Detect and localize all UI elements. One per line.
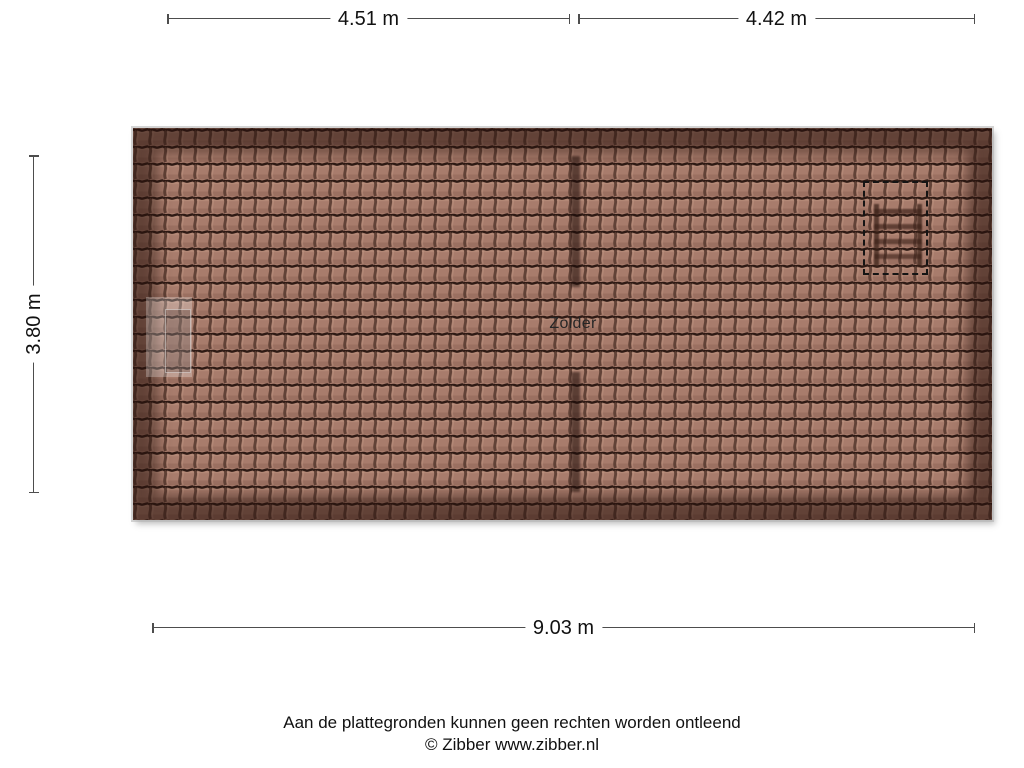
dimension-line-bottom: 9.03 m — [152, 621, 975, 635]
dimension-tick — [29, 155, 39, 157]
dimension-tick — [29, 492, 39, 494]
attic-roof-plan: Zolder — [133, 128, 992, 520]
dimension-tick — [167, 14, 169, 24]
dimension-line-top-left: 4.51 m — [167, 12, 570, 26]
dimension-line-left: 3.80 m — [27, 155, 41, 493]
dimension-tick — [974, 623, 976, 633]
dimension-tick — [152, 623, 154, 633]
footer-copyright: © Zibber www.zibber.nl — [0, 734, 1024, 756]
interior-wall-segment-upper — [571, 156, 580, 287]
ladder-rung — [874, 239, 922, 244]
dimension-label-left: 3.80 m — [21, 285, 47, 362]
interior-wall-segment-lower — [571, 372, 580, 492]
roof-window — [146, 297, 192, 377]
dimension-line-top-right: 4.42 m — [578, 12, 975, 26]
footer-disclaimer: Aan de plattegronden kunnen geen rechten… — [0, 712, 1024, 734]
dimension-tick — [974, 14, 976, 24]
ladder-rung — [874, 224, 922, 229]
room-label: Zolder — [549, 315, 596, 333]
ladder-rung — [874, 254, 922, 259]
dimension-label-top-right: 4.42 m — [738, 6, 815, 32]
loft-ladder-icon — [874, 204, 922, 267]
footer: Aan de plattegronden kunnen geen rechten… — [0, 712, 1024, 756]
dimension-label-top-left: 4.51 m — [330, 6, 407, 32]
dimension-tick — [578, 14, 580, 24]
roof-window-pane — [165, 309, 191, 373]
dimension-tick — [569, 14, 571, 24]
dimension-label-bottom: 9.03 m — [525, 615, 602, 641]
floorplan-page: 4.51 m 4.42 m 3.80 m — [0, 0, 1024, 768]
ladder-rung — [874, 209, 922, 214]
